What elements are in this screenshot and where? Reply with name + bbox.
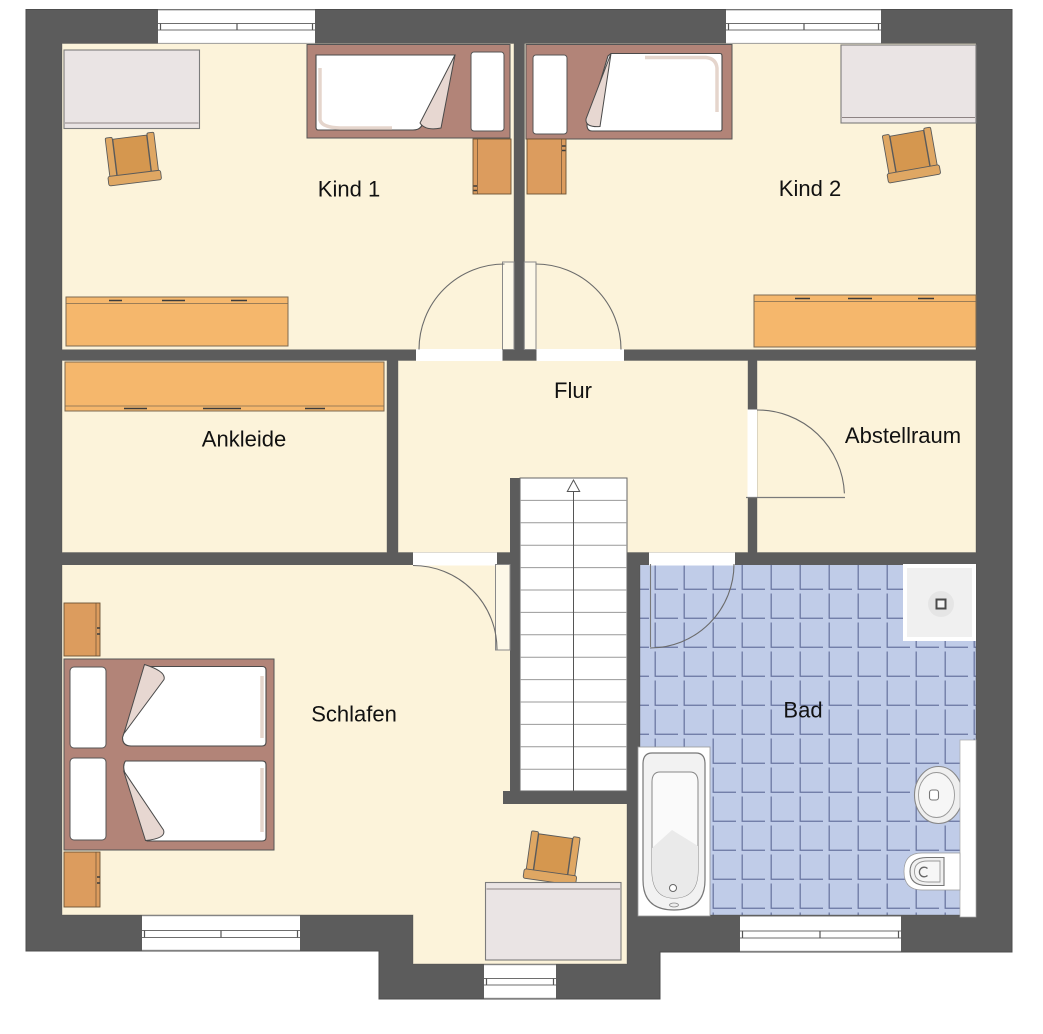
svg-text:Kind 2: Kind 2 — [779, 176, 841, 201]
svg-text:Ankleide: Ankleide — [202, 427, 286, 452]
svg-text:Abstellraum: Abstellraum — [845, 423, 961, 448]
svg-text:Flur: Flur — [554, 378, 592, 403]
svg-text:Kind 1: Kind 1 — [318, 177, 380, 202]
svg-text:Bad: Bad — [783, 698, 822, 723]
svg-text:Schlafen: Schlafen — [311, 702, 397, 727]
